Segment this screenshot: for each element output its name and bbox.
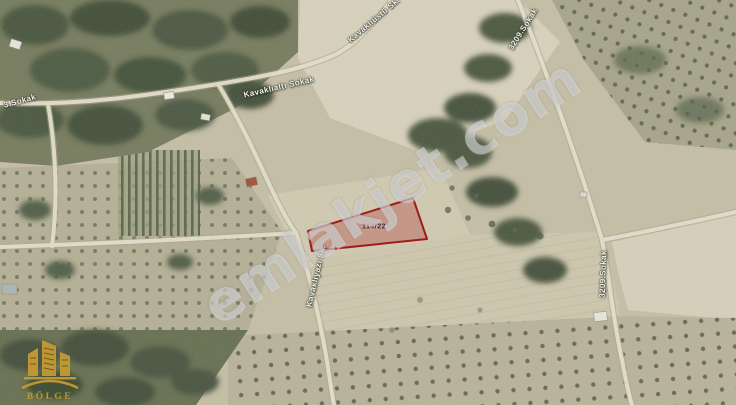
parcel-number-label: 114/22 bbox=[362, 224, 386, 231]
street-label-3209-right: 3209.Sokak bbox=[598, 250, 609, 298]
buildings-icon: BÖLGE bbox=[22, 340, 78, 402]
agency-logo: BÖLGE bbox=[14, 332, 86, 402]
agency-logo-text: BÖLGE bbox=[27, 389, 73, 402]
satellite-map[interactable]: Kavaklıaltı Sokak Kavaklıüstü Sk. 3209.S… bbox=[0, 0, 736, 405]
terrain-art bbox=[0, 0, 736, 405]
agency-logo-art: BÖLGE bbox=[14, 332, 86, 402]
grain-overlay bbox=[0, 0, 736, 405]
